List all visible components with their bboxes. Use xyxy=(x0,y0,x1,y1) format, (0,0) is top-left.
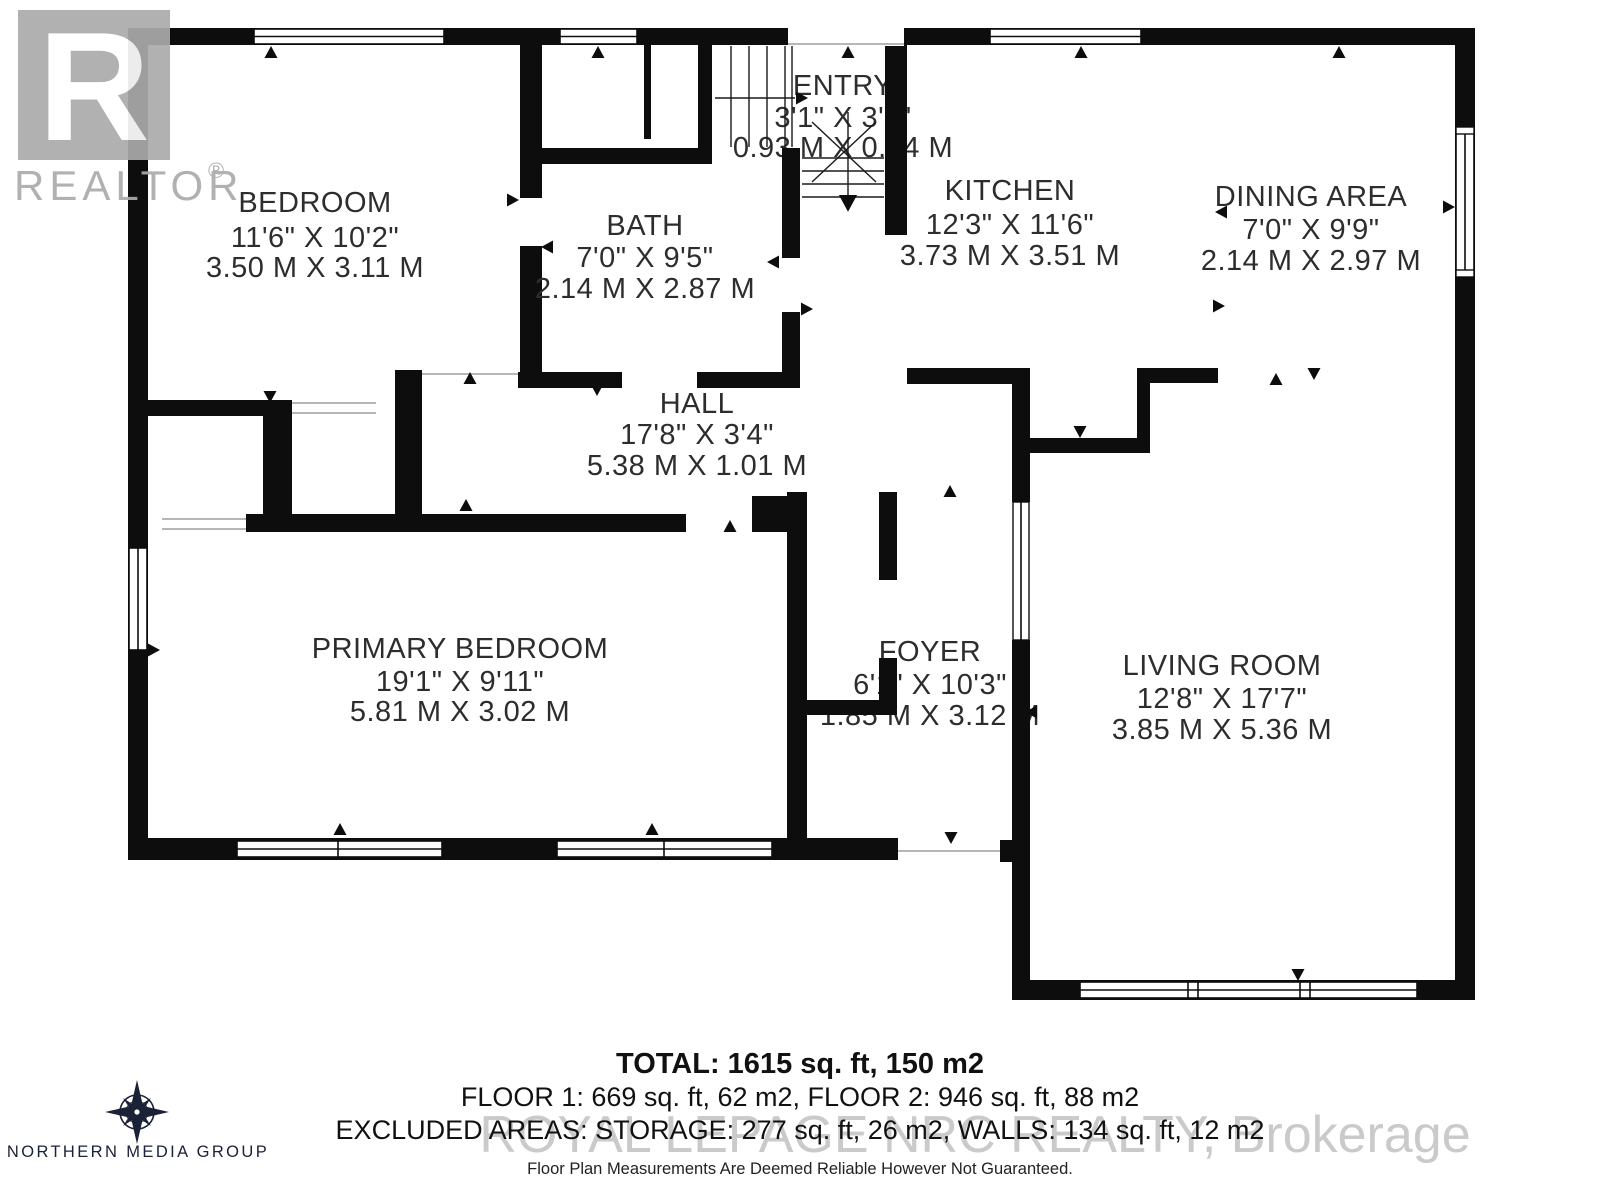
excluded-areas-text: EXCLUDED AREAS: STORAGE: 277 sq. ft, 26 … xyxy=(336,1115,1265,1145)
primary-metric: 5.81 M X 3.02 M xyxy=(350,696,570,728)
floor-plan-svg: ENTRY 3'1" X 3'1" 0.93 M X 0.94 M FOYER … xyxy=(0,0,1600,1200)
room-label-hall: HALL 17'8" X 3'4" 5.38 M X 1.01 M xyxy=(587,388,807,482)
room-label-kitchen: KITCHEN 12'3" X 11'6" 3.73 M X 3.51 M xyxy=(900,175,1120,272)
room-label-primary: PRIMARY BEDROOM 19'1" X 9'11" 5.81 M X 3… xyxy=(312,633,608,728)
room-label-dining: DINING AREA 7'0" X 9'9" 2.14 M X 2.97 M xyxy=(1201,181,1421,277)
room-label-living: LIVING ROOM 12'8" X 17'7" 3.85 M X 5.36 … xyxy=(1112,650,1332,746)
dining-name: DINING AREA xyxy=(1215,181,1408,213)
compass-icon xyxy=(105,1080,169,1144)
hall-name: HALL xyxy=(660,388,735,420)
bedroom-metric: 3.50 M X 3.11 M xyxy=(206,252,424,284)
living-name: LIVING ROOM xyxy=(1123,650,1322,682)
kitchen-imperial: 12'3" X 11'6" xyxy=(926,209,1094,241)
bath-metric: 2.14 M X 2.87 M xyxy=(535,273,755,305)
foyer-imperial: 6'1" X 10'3" xyxy=(853,669,1007,701)
summary-block: ROYAL LEPAGE NRC REALTY, Brokerage TOTAL… xyxy=(336,1048,1471,1178)
realtor-logo-r: R xyxy=(38,0,150,173)
bath-imperial: 7'0" X 9'5" xyxy=(576,242,713,274)
primary-imperial: 19'1" X 9'11" xyxy=(376,666,544,698)
hall-imperial: 17'8" X 3'4" xyxy=(620,419,774,451)
primary-name: PRIMARY BEDROOM xyxy=(312,633,608,665)
nmg-logo: NORTHERN MEDIA GROUP xyxy=(7,1080,269,1161)
entry-exterior-opening xyxy=(788,27,904,46)
entry-metric: 0.93 M X 0.94 M xyxy=(733,132,953,164)
room-label-entry: ENTRY 3'1" X 3'1" 0.93 M X 0.94 M xyxy=(733,70,953,164)
bath-name: BATH xyxy=(606,210,683,242)
living-metric: 3.85 M X 5.36 M xyxy=(1112,714,1332,746)
dining-metric: 2.14 M X 2.97 M xyxy=(1201,245,1421,277)
total-area-text: TOTAL: 1615 sq. ft, 150 m2 xyxy=(616,1048,984,1080)
room-label-bath: BATH 7'0" X 9'5" 2.14 M X 2.87 M xyxy=(535,210,755,305)
room-label-foyer: FOYER 6'1" X 10'3" 1.85 M X 3.12 M xyxy=(820,636,1040,732)
living-imperial: 12'8" X 17'7" xyxy=(1137,683,1307,715)
media-group-name: NORTHERN MEDIA GROUP xyxy=(7,1143,269,1161)
hall-metric: 5.38 M X 1.01 M xyxy=(587,450,807,482)
bedroom-name: BEDROOM xyxy=(238,187,391,219)
realtor-registered-icon: ® xyxy=(208,158,224,183)
kitchen-name: KITCHEN xyxy=(945,175,1076,207)
floor-plan-page: ENTRY 3'1" X 3'1" 0.93 M X 0.94 M FOYER … xyxy=(0,0,1600,1200)
kitchen-metric: 3.73 M X 3.51 M xyxy=(900,240,1120,272)
entry-name: ENTRY xyxy=(793,70,893,102)
floor-areas-text: FLOOR 1: 669 sq. ft, 62 m2, FLOOR 2: 946… xyxy=(461,1082,1139,1112)
dining-imperial: 7'0" X 9'9" xyxy=(1242,214,1379,246)
disclaimer-text: Floor Plan Measurements Are Deemed Relia… xyxy=(527,1160,1073,1178)
bedroom-imperial: 11'6" X 10'2" xyxy=(231,222,399,254)
